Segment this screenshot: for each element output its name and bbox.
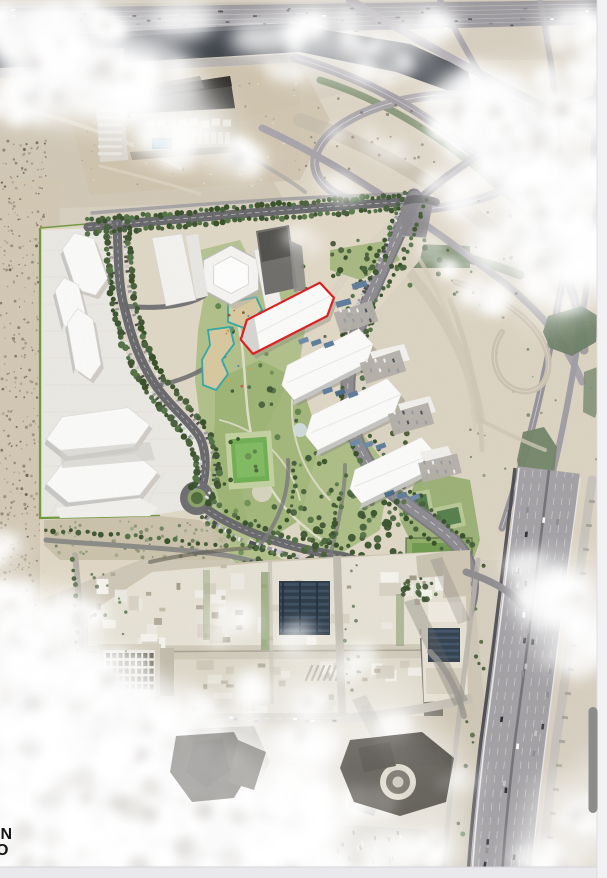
- svg-text:O: O: [0, 842, 8, 859]
- svg-text:N: N: [1, 826, 13, 843]
